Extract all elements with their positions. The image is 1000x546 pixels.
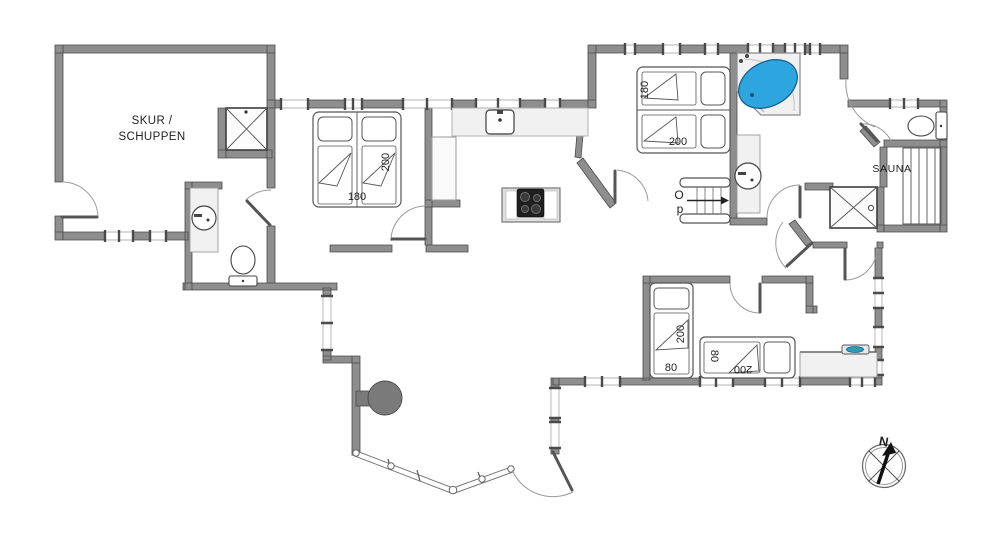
double-bed-west: 180 200 [313,112,401,207]
tub-faucet-icon [745,54,749,58]
pillow [362,117,396,141]
compass-rose: N [863,433,906,487]
bed-length-label: 200 [734,363,752,375]
sauna-benches [903,148,941,224]
sink-middle [735,135,761,213]
bed-width-label: 180 [348,191,366,203]
kitchen-island [502,188,560,222]
pillow [701,115,725,148]
tub-faucet-icon [739,59,743,63]
toilet-west [229,246,257,286]
bay-glass [352,450,513,493]
bed-length-label: 200 [669,136,687,148]
shower-head-icon [244,110,247,113]
single-bed-horizontal: 80 200 [700,337,795,378]
north-needle-icon [878,451,889,484]
skur-room-label-line2: SCHUPPEN [118,131,185,143]
pillow [654,288,689,309]
shower-west [226,108,267,150]
shower-east [830,187,877,228]
floor-plan-page: O p 180 200 180 200 [0,0,1000,546]
single-bed-vertical: 200 80 [650,283,693,378]
kitchen-counter [452,108,588,136]
bed-width-label: 80 [665,362,677,374]
faucet-icon [194,214,202,217]
bed-length-label: 200 [380,153,392,171]
pillow [318,117,352,141]
stairs-label-p: p [677,202,684,216]
stairs: O p [674,178,730,223]
fireplace [356,381,402,415]
whirlpool-tub [730,50,805,118]
pillow [764,342,790,373]
bed-width-label: 80 [708,350,720,362]
shower-knob-icon [868,205,873,210]
toilet-east [908,112,947,139]
bay-window-wall [352,450,514,494]
floor-plan-drawing: O p 180 200 180 200 [0,0,1000,546]
bed-width-label: 180 [639,81,651,99]
annex-counter [800,345,877,377]
bed-length-label: 200 [675,325,687,343]
sauna-room-label: SAUNA [872,163,911,175]
skur-room-label-line1: SKUR / [132,115,173,127]
cooktop [517,189,544,217]
double-bed-middle: 180 200 [637,67,730,153]
stairs-label-o: O [674,188,683,202]
pillow [701,72,725,105]
sink-west [190,188,218,252]
faucet-icon [497,110,503,114]
stairs-up-arrow-icon [721,197,729,205]
faucet-icon [738,172,746,175]
bay-joints [353,450,514,494]
wardrobe [432,137,456,200]
